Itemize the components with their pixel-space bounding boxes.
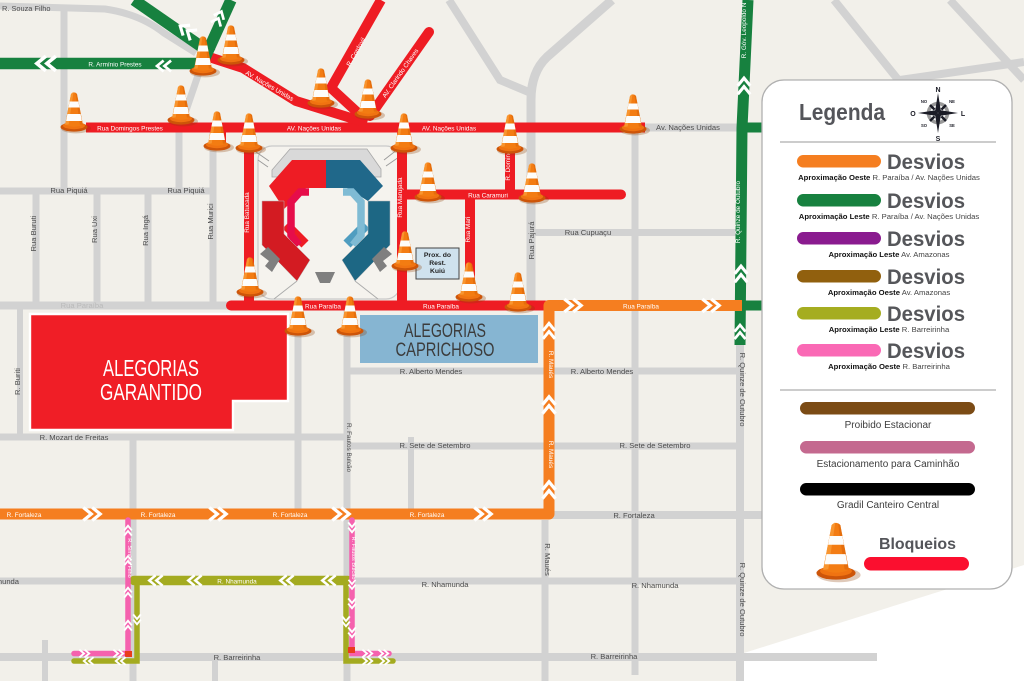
svg-text:Proibido Estacionar: Proibido Estacionar: [845, 420, 932, 431]
svg-text:R. Fortaleza: R. Fortaleza: [410, 512, 445, 519]
svg-text:Gradil Canteiro Central: Gradil Canteiro Central: [837, 500, 939, 511]
svg-text:R. Nhamunda: R. Nhamunda: [217, 579, 257, 586]
svg-text:R. Sete de Setembro: R. Sete de Setembro: [400, 441, 471, 450]
svg-text:Rua Uxi: Rua Uxi: [90, 216, 99, 243]
svg-text:Rua Piquiá: Rua Piquiá: [167, 186, 205, 195]
svg-text:Aproximação Oeste R. Paraíba /: Aproximação Oeste R. Paraíba / Av. Naçõe…: [798, 173, 980, 182]
svg-text:Desvios: Desvios: [887, 303, 965, 326]
svg-text:Aproximação Leste Av. Amazonas: Aproximação Leste Av. Amazonas: [828, 250, 949, 259]
svg-text:R. Quinze de Outubro: R. Quinze de Outubro: [735, 180, 742, 243]
svg-text:R. Fautos Bulcão: R. Fautos Bulcão: [350, 537, 356, 580]
svg-text:Rua Caramuri: Rua Caramuri: [468, 193, 508, 200]
svg-text:ALEGORIAS: ALEGORIAS: [103, 355, 199, 381]
svg-text:R. Simões Filho: R. Simões Filho: [126, 538, 132, 577]
svg-text:R. Fortaleza: R. Fortaleza: [141, 512, 176, 519]
svg-text:Rest.: Rest.: [429, 260, 446, 267]
svg-text:R. Barreirinha: R. Barreirinha: [591, 652, 639, 661]
svg-text:Estacionamento para Caminhão: Estacionamento para Caminhão: [817, 459, 960, 470]
svg-text:Rua Paraíba: Rua Paraíba: [423, 304, 459, 311]
svg-text:R. Nhamunda: R. Nhamunda: [422, 580, 470, 589]
svg-text:Rua Cupuaçu: Rua Cupuaçu: [565, 228, 611, 237]
svg-text:NE: NE: [949, 99, 955, 104]
svg-text:CAPRICHOSO: CAPRICHOSO: [396, 340, 495, 361]
svg-text:NO: NO: [921, 99, 928, 104]
svg-text:R. Armínio Prestes: R. Armínio Prestes: [88, 62, 141, 69]
svg-text:SE: SE: [949, 123, 955, 128]
svg-text:R. Nhamunda: R. Nhamunda: [632, 581, 680, 590]
svg-text:O: O: [910, 111, 916, 118]
svg-text:Desvios: Desvios: [887, 340, 965, 363]
svg-text:Desvios: Desvios: [887, 190, 965, 213]
svg-text:ALEGORIAS: ALEGORIAS: [404, 321, 486, 342]
svg-text:R. Alberto Mendes: R. Alberto Mendes: [400, 367, 463, 376]
svg-text:Rua Murici: Rua Murici: [206, 203, 215, 240]
svg-text:R. Nhamunda: R. Nhamunda: [0, 577, 20, 586]
svg-text:Rua Batucada: Rua Batucada: [244, 192, 251, 233]
svg-text:R. Sete de Setembro: R. Sete de Setembro: [620, 441, 691, 450]
svg-text:R. Fortaleza: R. Fortaleza: [273, 512, 308, 519]
svg-text:Legenda: Legenda: [799, 99, 885, 125]
svg-text:R. Fautos Bulcão: R. Fautos Bulcão: [345, 423, 352, 472]
svg-text:Rua Paraíba: Rua Paraíba: [623, 304, 659, 311]
svg-text:Aproximação Leste R. Paraíba /: Aproximação Leste R. Paraíba / Av. Naçõe…: [799, 212, 980, 221]
svg-text:Rua Piquiá: Rua Piquiá: [50, 186, 88, 195]
svg-text:GARANTIDO: GARANTIDO: [100, 379, 202, 405]
svg-text:Bloqueios: Bloqueios: [879, 536, 956, 553]
svg-text:Rua Buruti: Rua Buruti: [29, 215, 38, 251]
svg-text:AV. Nações Unidas: AV. Nações Unidas: [422, 126, 476, 133]
svg-text:Av. Nações Unidas: Av. Nações Unidas: [656, 123, 720, 132]
svg-text:Desvios: Desvios: [887, 228, 965, 251]
svg-text:Prox. do: Prox. do: [424, 252, 451, 259]
svg-text:R. Barreirinha: R. Barreirinha: [214, 653, 262, 662]
svg-text:R. Alberto Mendes: R. Alberto Mendes: [571, 367, 634, 376]
svg-text:Rua Ingá: Rua Ingá: [141, 214, 150, 246]
svg-text:Desvios: Desvios: [887, 151, 965, 174]
svg-text:R. Buriti: R. Buriti: [13, 368, 22, 395]
svg-text:R. Maués: R. Maués: [547, 441, 554, 468]
svg-text:R. Maués: R. Maués: [547, 351, 554, 378]
svg-text:Aproximação Leste R. Barreirin: Aproximação Leste R. Barreirinha: [829, 325, 950, 334]
svg-text:R. Góv. Leopoldo N: R. Góv. Leopoldo N: [741, 2, 748, 58]
svg-text:R. Fortaleza: R. Fortaleza: [7, 512, 42, 519]
svg-text:R. Maués: R. Maués: [543, 543, 552, 576]
svg-text:Rua Mari: Rua Mari: [465, 217, 472, 243]
svg-text:Aproximação Oeste R. Barreirin: Aproximação Oeste R. Barreirinha: [828, 362, 951, 371]
svg-text:Rua Pajurá: Rua Pajurá: [527, 221, 536, 260]
svg-text:Kuiú: Kuiú: [430, 268, 445, 275]
svg-text:L: L: [961, 111, 966, 118]
svg-text:AV. Nações Unidas: AV. Nações Unidas: [287, 126, 341, 133]
svg-text:Rua Domingos Prestes: Rua Domingos Prestes: [97, 126, 163, 133]
svg-text:Rua Paraíba: Rua Paraíba: [61, 301, 104, 310]
svg-text:Rua Paraíba: Rua Paraíba: [305, 304, 341, 311]
svg-text:R. Mozart de Freitas: R. Mozart de Freitas: [40, 433, 109, 442]
svg-text:Rua Marujada: Rua Marujada: [397, 177, 404, 218]
svg-text:R. Quinze de Outubro: R. Quinze de Outubro: [738, 353, 747, 427]
svg-text:SO: SO: [921, 123, 928, 128]
svg-text:R. Quinze de Outubro: R. Quinze de Outubro: [738, 563, 747, 637]
svg-text:Desvios: Desvios: [887, 266, 965, 289]
svg-text:N: N: [935, 87, 940, 94]
svg-text:R. Fortaleza: R. Fortaleza: [613, 511, 655, 520]
svg-text:R. Souza Filho: R. Souza Filho: [2, 4, 50, 13]
svg-text:Aproximação Oeste Av. Amazonas: Aproximação Oeste Av. Amazonas: [828, 288, 951, 297]
